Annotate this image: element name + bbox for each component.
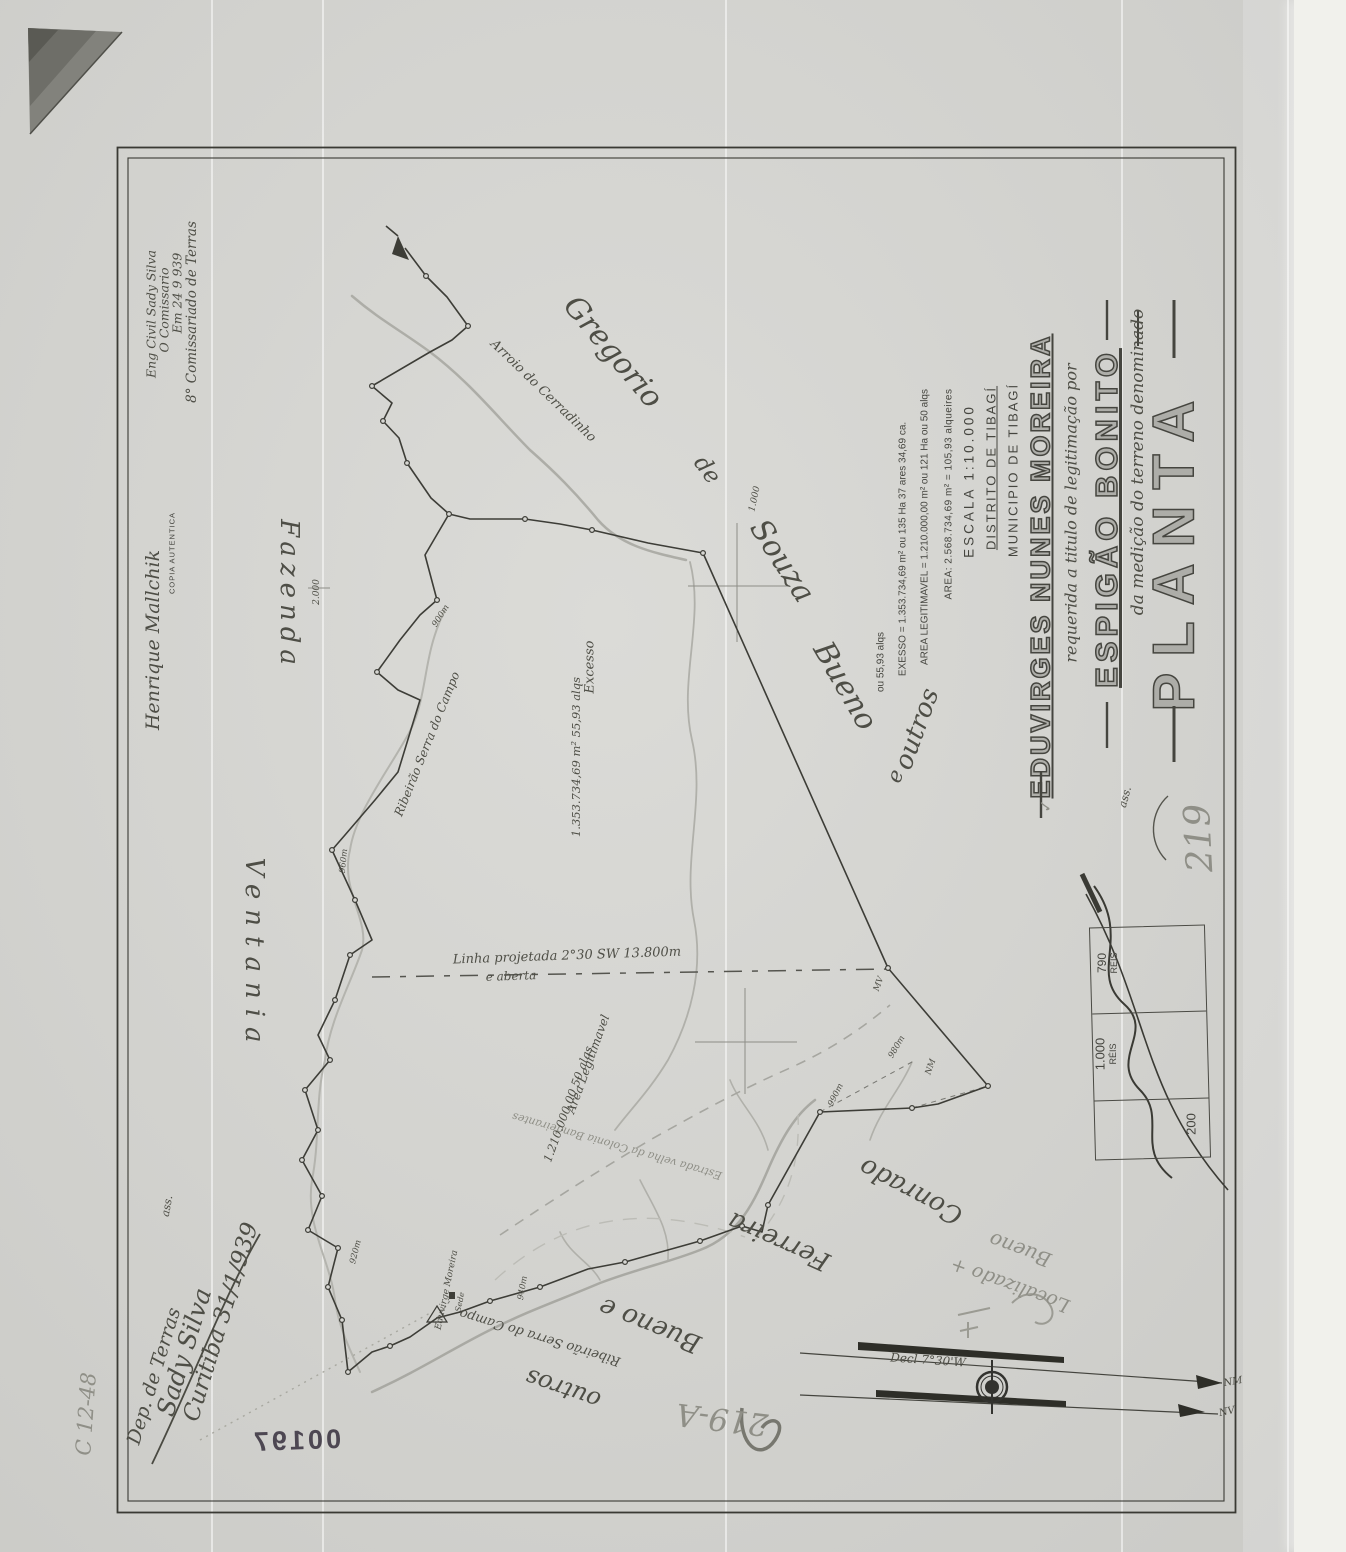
survey-map-sheet: PLANTA da medição do terreno denominado … bbox=[0, 0, 1346, 1552]
dashed-arc bbox=[495, 1218, 745, 1280]
legitimable-area-label: AREA LEGITIMAVEL = 1.210.000,00 m² ou 12… bbox=[920, 389, 931, 665]
stamp-cell1-value: 790 bbox=[1095, 953, 1109, 973]
projected-line-label-2: e aberta bbox=[485, 968, 536, 984]
creek-tributary bbox=[730, 1080, 768, 1150]
scale-label: ESCALA 1:10.000 bbox=[962, 404, 977, 558]
corner-fold bbox=[28, 28, 122, 134]
vertex-markers bbox=[300, 274, 991, 1375]
stamp-cell1-unit: RÉIS bbox=[1109, 952, 1119, 973]
creek-middle bbox=[615, 562, 697, 1130]
stamp-box-divider bbox=[1094, 1097, 1208, 1101]
owner-check-mark: ✓ bbox=[1036, 799, 1056, 812]
property-name: ESPIGÃO BONITO bbox=[1089, 348, 1125, 688]
excess-area-label: EXESSO = 1.353.734,69 m² ou 135 Ha 37 ar… bbox=[898, 422, 909, 676]
excess-area-label-2: ou 55,93 alqs bbox=[876, 632, 887, 692]
stamp-box-divider bbox=[1092, 1011, 1206, 1015]
municipality-label: MUNICIPIO DE TIBAGÍ bbox=[1006, 383, 1021, 557]
creek-cerradinho bbox=[352, 296, 686, 560]
fazenda-label: Fazenda bbox=[274, 519, 304, 671]
request-line: requerida a titulo de legitimação por bbox=[1062, 363, 1081, 662]
district-label: DISTRITO DE TIBAGÍ bbox=[984, 386, 999, 550]
stamp-cell2-unit: RÉIS bbox=[1108, 1043, 1118, 1064]
map-subtitle: da medição do terreno denominado bbox=[1128, 309, 1148, 615]
stamp-cell3-value: 200 bbox=[1184, 1113, 1199, 1135]
start-arrow bbox=[386, 226, 409, 260]
commission-note-line1: 8° Comissariado de Terras bbox=[184, 221, 200, 403]
signature-flourish bbox=[152, 796, 1228, 1464]
creek-tributary bbox=[640, 1180, 668, 1260]
ventania-label: Ventania bbox=[239, 857, 269, 1052]
owner-name: EDUVIRGES NUNES MOREIRA bbox=[1026, 333, 1057, 798]
creeks bbox=[311, 296, 912, 1392]
commission-note-line4: Eng Civil Sady Silva bbox=[144, 250, 159, 378]
area-label: AREA: 2.568.734,69 m² = 105,93 alqueires bbox=[944, 389, 955, 600]
registry-number-stamp: 00197 bbox=[250, 1424, 341, 1458]
copy-signature: Henrique Mallchik bbox=[142, 550, 164, 730]
compass-rose bbox=[800, 1342, 1222, 1417]
map-title: PLANTA bbox=[1141, 385, 1208, 712]
grid-label-2000: 2.000 bbox=[312, 579, 322, 605]
excess-note-label: Excesso bbox=[583, 641, 598, 694]
stamp-cell2-value: 1.000 bbox=[1093, 1038, 1108, 1071]
copy-authentic-label: COPIA AUTENTICA bbox=[168, 512, 177, 594]
commission-note-line2: Em 24 9 939 bbox=[170, 253, 185, 334]
grid-crosses bbox=[308, 523, 797, 1094]
doc-number: 219 bbox=[1177, 803, 1222, 874]
projected-dashed-line bbox=[372, 969, 888, 977]
commission-note-line3: O Comissario bbox=[157, 268, 172, 353]
dashed-lines bbox=[372, 969, 988, 1318]
excess-note-value: 1.353.734,69 m² 55,93 alqs bbox=[569, 677, 583, 837]
creek-west bbox=[311, 610, 445, 1372]
